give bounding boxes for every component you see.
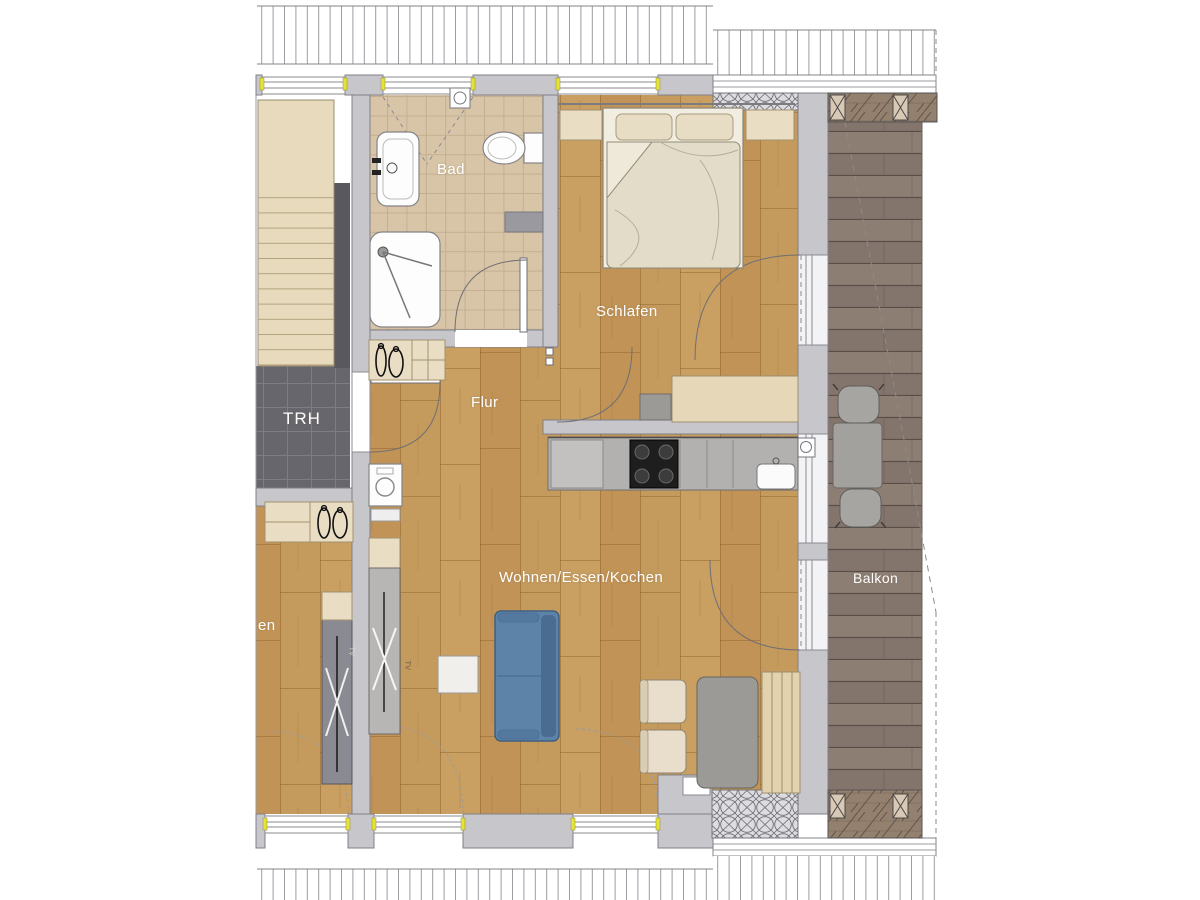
roof-edge-strip-top: [713, 75, 936, 93]
balcony-furniture: [833, 384, 886, 528]
room-label-trh: TRH: [283, 409, 321, 429]
window-top-bedroom: [556, 77, 660, 94]
parapet-post: [893, 794, 908, 818]
room-label-schlafen: Schlafen: [596, 303, 658, 320]
kitchen-tall-cabinet: [369, 538, 400, 568]
wall-bottom: [463, 814, 573, 848]
washing-machine: [369, 464, 402, 521]
roof-edge-strip-bottom: [713, 838, 936, 856]
wall-top: [473, 75, 558, 95]
neighbor-wardrobe: [265, 502, 353, 542]
wall-right: [798, 543, 828, 560]
balcony-chair: [833, 384, 884, 423]
dining-chair: [640, 730, 686, 773]
bathroom-sink: [372, 132, 419, 206]
door-leaf: [520, 258, 527, 332]
wall-bottom: [658, 814, 713, 848]
window-top-stairs: [260, 77, 347, 94]
roof-band-bottom-right: [713, 856, 936, 900]
wall-neighbor-apartment: [352, 452, 370, 814]
desk: [672, 376, 798, 422]
roof-band-bottom-left: [257, 869, 713, 900]
wall-top: [658, 75, 713, 95]
room-label-neighbor-fragment: en: [258, 617, 276, 634]
wall-column-round-duct: [450, 88, 470, 108]
wall-right: [798, 93, 828, 255]
floor-plan-drawing: [0, 0, 1200, 900]
kitchen-glazing: [798, 434, 828, 543]
toilet: [483, 132, 543, 164]
roof-band-top-right: [713, 30, 936, 75]
floor-plan: TRH Bad Flur Schlafen Wohnen/Essen/Koche…: [0, 0, 1200, 900]
balcony-parapet-top: [828, 93, 937, 122]
dining-table: [697, 677, 758, 788]
wall-top: [345, 75, 383, 95]
balcony-table: [833, 423, 882, 488]
tv-sideboard: [369, 568, 400, 734]
wall-stairwell-apartment: [352, 95, 370, 372]
insulated-wall-bottom: [712, 790, 798, 838]
dining-bench: [762, 672, 800, 793]
room-label-flur: Flur: [471, 394, 498, 411]
wardrobe: [369, 340, 445, 380]
stair-side-strip: [334, 183, 350, 368]
pillow-left: [616, 114, 672, 140]
fridge-unit: [551, 440, 603, 488]
shower: [370, 232, 440, 327]
cooktop: [630, 440, 678, 488]
sofa-backrest: [541, 615, 556, 737]
roof-band-top-left: [257, 6, 713, 64]
wall-right: [798, 345, 828, 434]
nightstand-right: [746, 110, 794, 140]
balcony-chair: [835, 489, 886, 528]
parapet-post: [830, 794, 845, 818]
pillow-right: [676, 114, 733, 140]
room-label-bad: Bad: [437, 161, 465, 178]
dining-chair: [640, 680, 686, 723]
sofa: [495, 611, 559, 741]
stair-treads: [258, 183, 334, 366]
parapet-post: [830, 95, 845, 120]
parapet-post: [893, 95, 908, 120]
balcony-parapet-bottom: [828, 790, 922, 838]
wall-bottom: [348, 814, 374, 848]
coffee-table: [438, 656, 478, 693]
room-label-balkon: Balkon: [853, 570, 898, 586]
tv-label: TV: [347, 647, 354, 657]
nightstand-left: [560, 110, 602, 140]
bedroom-cabinet: [640, 394, 671, 420]
bath-niche: [505, 212, 543, 232]
tv-label: TV: [403, 661, 410, 671]
staircase: [258, 100, 334, 366]
neighbor-tv-sideboard: [322, 592, 352, 784]
bed: [603, 108, 743, 268]
room-label-wohnen-essen-kochen: Wohnen/Essen/Kochen: [499, 569, 663, 586]
wall-bath-bedroom: [543, 95, 558, 347]
wall-right: [798, 650, 828, 814]
